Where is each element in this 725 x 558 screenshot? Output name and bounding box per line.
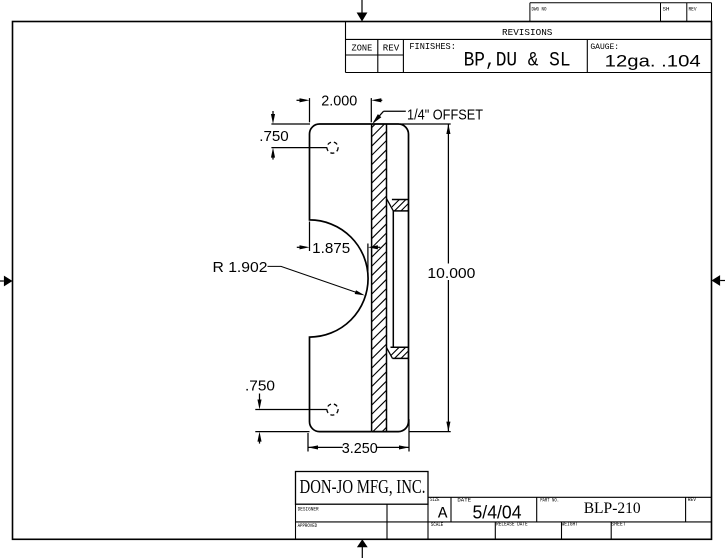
svg-text:DESIGNER: DESIGNER <box>298 506 319 513</box>
svg-text:REV: REV <box>383 44 400 54</box>
svg-text:REVISIONS: REVISIONS <box>502 27 553 38</box>
svg-text:.750: .750 <box>259 129 289 145</box>
svg-text:BP,DU & SL: BP,DU & SL <box>464 49 571 72</box>
svg-text:12ga. .104: 12ga. .104 <box>605 52 701 71</box>
svg-text:R 1.902: R 1.902 <box>213 260 268 276</box>
svg-text:PART NO.: PART NO. <box>540 496 559 503</box>
svg-text:SCALE: SCALE <box>431 521 444 528</box>
svg-text:1.875: 1.875 <box>312 241 350 257</box>
svg-text:BLP-210: BLP-210 <box>584 500 641 517</box>
svg-text:APPROVED: APPROVED <box>298 522 318 529</box>
svg-text:1/4" OFFSET: 1/4" OFFSET <box>407 107 483 123</box>
svg-text:RELEASE DATE: RELEASE DATE <box>496 521 528 528</box>
svg-text:SH: SH <box>663 5 670 12</box>
svg-text:DON-JO MFG, INC.: DON-JO MFG, INC. <box>300 477 426 498</box>
svg-text:DWG NO: DWG NO <box>532 5 547 12</box>
svg-text:SIZE: SIZE <box>430 496 440 503</box>
svg-text:2.000: 2.000 <box>321 94 357 110</box>
svg-text:5/4/04: 5/4/04 <box>473 502 522 522</box>
svg-text:.750: .750 <box>245 379 275 395</box>
svg-text:REV: REV <box>689 5 697 12</box>
svg-text:3.250: 3.250 <box>342 441 378 457</box>
svg-text:10.000: 10.000 <box>427 266 475 282</box>
svg-text:GAUGE:: GAUGE: <box>590 43 619 52</box>
svg-text:WEIGHT: WEIGHT <box>562 521 579 528</box>
svg-text:REV: REV <box>688 496 697 503</box>
svg-text:ZONE: ZONE <box>352 44 373 54</box>
svg-text:SHEET: SHEET <box>611 521 626 528</box>
svg-text:A: A <box>438 505 448 523</box>
svg-text:DATE: DATE <box>457 496 471 503</box>
svg-text:FINISHES:: FINISHES: <box>409 42 456 52</box>
